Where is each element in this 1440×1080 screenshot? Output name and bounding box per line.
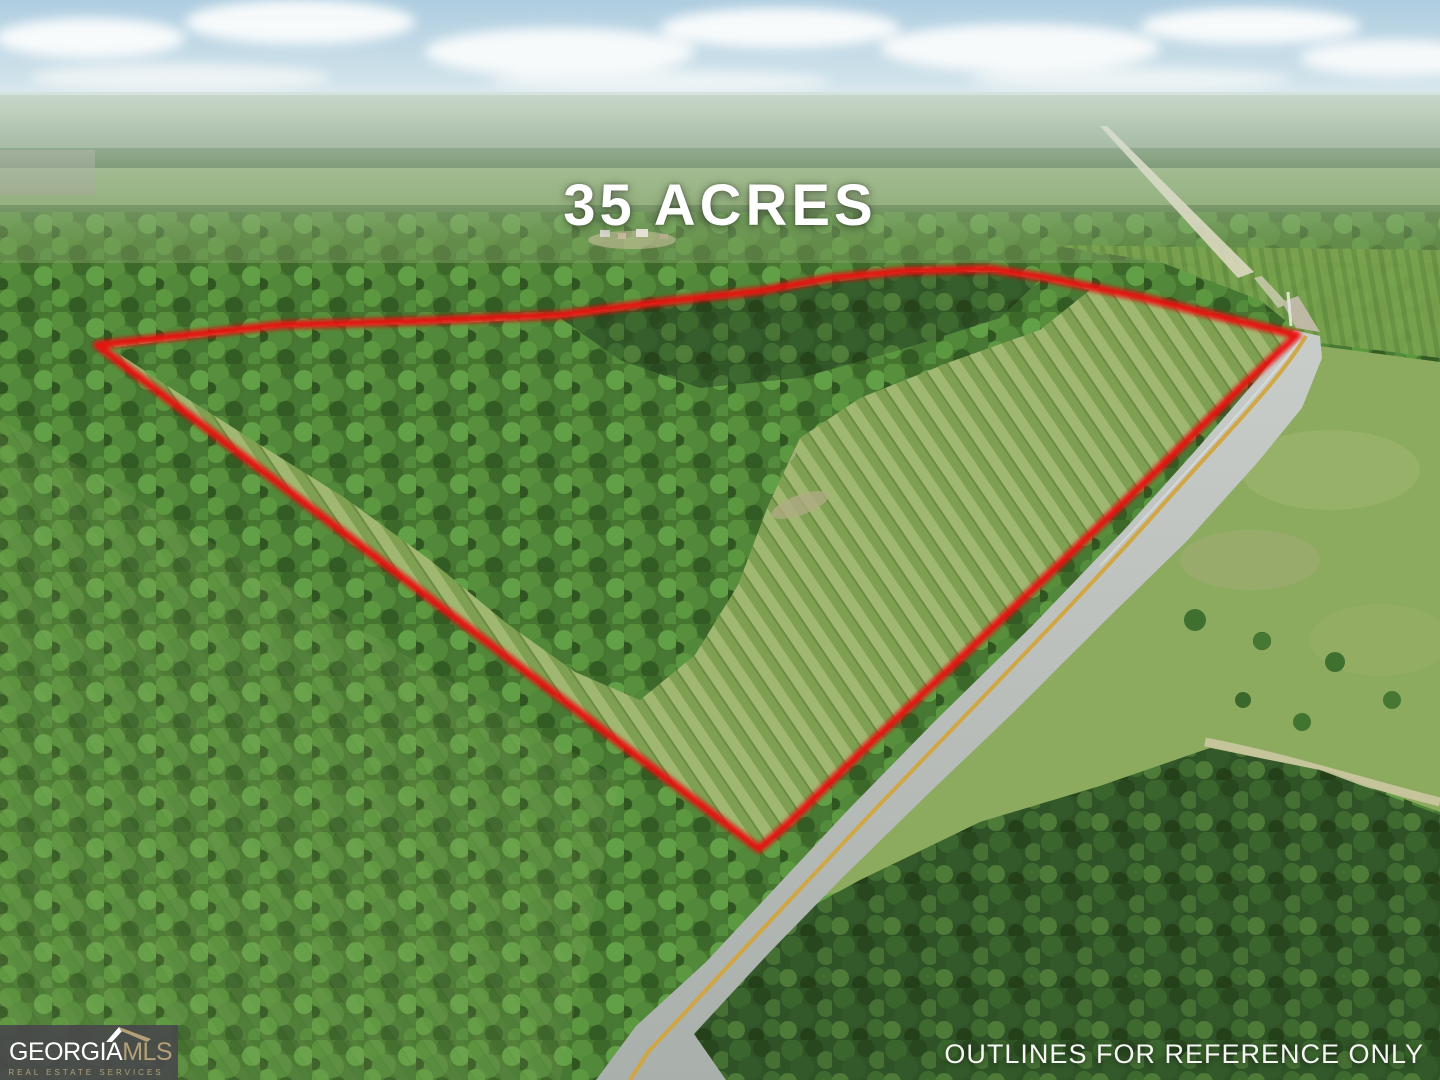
logo-text-georgia: GEORGIA [9, 1038, 122, 1066]
listing-photo: 35 ACRES GEORGIAMLS REAL ESTATE SERVICES… [0, 0, 1440, 1080]
logo-text-mls: MLS [122, 1038, 172, 1066]
logo-tagline: REAL ESTATE SERVICES [0, 1068, 172, 1077]
acreage-label: 35 ACRES [0, 172, 1440, 239]
disclaimer-text: OUTLINES FOR REFERENCE ONLY [944, 1039, 1424, 1070]
georgia-mls-logo: GEORGIAMLS REAL ESTATE SERVICES [0, 1025, 178, 1080]
logo-wordmark: GEORGIAMLS [9, 1038, 172, 1067]
aerial-photograph [0, 0, 1440, 1080]
